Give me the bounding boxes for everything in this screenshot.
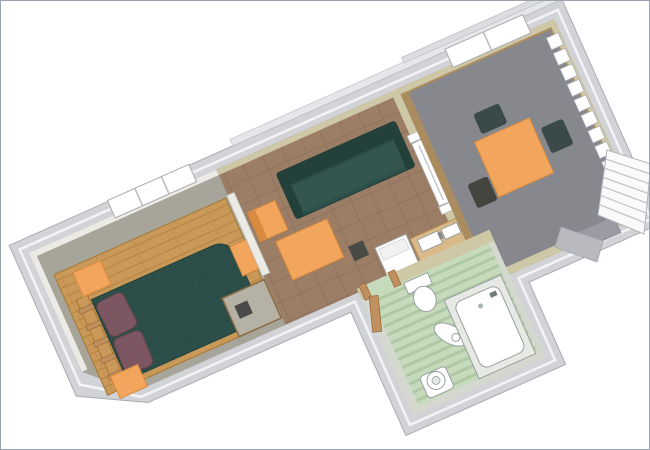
building bbox=[4, 1, 650, 450]
floorplan-3d-render bbox=[1, 1, 650, 450]
floorplan-image bbox=[0, 0, 650, 450]
